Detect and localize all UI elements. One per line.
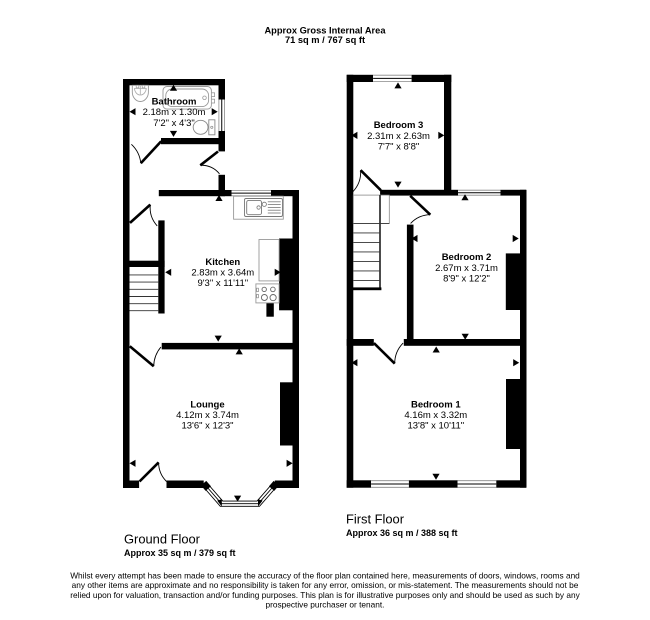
svg-text:7'7" x 8'8": 7'7" x 8'8" bbox=[378, 142, 420, 153]
svg-text:Lounge: Lounge bbox=[190, 399, 224, 410]
svg-text:Bedroom 1: Bedroom 1 bbox=[411, 399, 461, 410]
svg-text:relied upon for valuation, tra: relied upon for valuation, transaction a… bbox=[70, 590, 580, 600]
svg-text:8'9" x 12'2": 8'9" x 12'2" bbox=[443, 274, 490, 285]
svg-text:Approx 35 sq m / 379 sq ft: Approx 35 sq m / 379 sq ft bbox=[124, 548, 236, 558]
svg-text:Kitchen: Kitchen bbox=[205, 257, 240, 268]
svg-text:Ground Floor: Ground Floor bbox=[124, 531, 201, 546]
svg-text:Bedroom 3: Bedroom 3 bbox=[374, 120, 424, 131]
svg-text:2.18m x 1.30m: 2.18m x 1.30m bbox=[143, 107, 206, 118]
svg-text:4.16m x 3.32m: 4.16m x 3.32m bbox=[404, 410, 467, 421]
svg-text:9'3" x 11'11": 9'3" x 11'11" bbox=[197, 278, 248, 289]
svg-text:prospective purchaser or tenan: prospective purchaser or tenant. bbox=[266, 600, 385, 610]
svg-text:2.67m x 3.71m: 2.67m x 3.71m bbox=[435, 263, 498, 274]
svg-text:7'2" x 4'3": 7'2" x 4'3" bbox=[153, 118, 195, 129]
svg-text:4.12m x 3.74m: 4.12m x 3.74m bbox=[176, 410, 239, 421]
svg-text:2.31m x 2.63m: 2.31m x 2.63m bbox=[367, 131, 430, 142]
svg-text:Approx 36 sq m / 388 sq ft: Approx 36 sq m / 388 sq ft bbox=[346, 528, 458, 538]
svg-text:Bedroom 2: Bedroom 2 bbox=[442, 252, 492, 263]
svg-text:any other items are approximat: any other items are approximate and no r… bbox=[72, 580, 579, 590]
svg-text:Bathroom: Bathroom bbox=[152, 96, 197, 107]
svg-text:First Floor: First Floor bbox=[346, 511, 405, 526]
svg-text:13'8" x 10'11": 13'8" x 10'11" bbox=[407, 421, 464, 432]
svg-text:13'6" x 12'3": 13'6" x 12'3" bbox=[181, 421, 233, 432]
svg-text:Whilst every attempt has been: Whilst every attempt has been made to en… bbox=[70, 570, 580, 580]
svg-text:2.83m x 3.64m: 2.83m x 3.64m bbox=[191, 268, 254, 279]
svg-text:Approx Gross Internal Area: Approx Gross Internal Area bbox=[264, 25, 386, 35]
svg-text:71 sq m / 767 sq ft: 71 sq m / 767 sq ft bbox=[285, 35, 365, 45]
